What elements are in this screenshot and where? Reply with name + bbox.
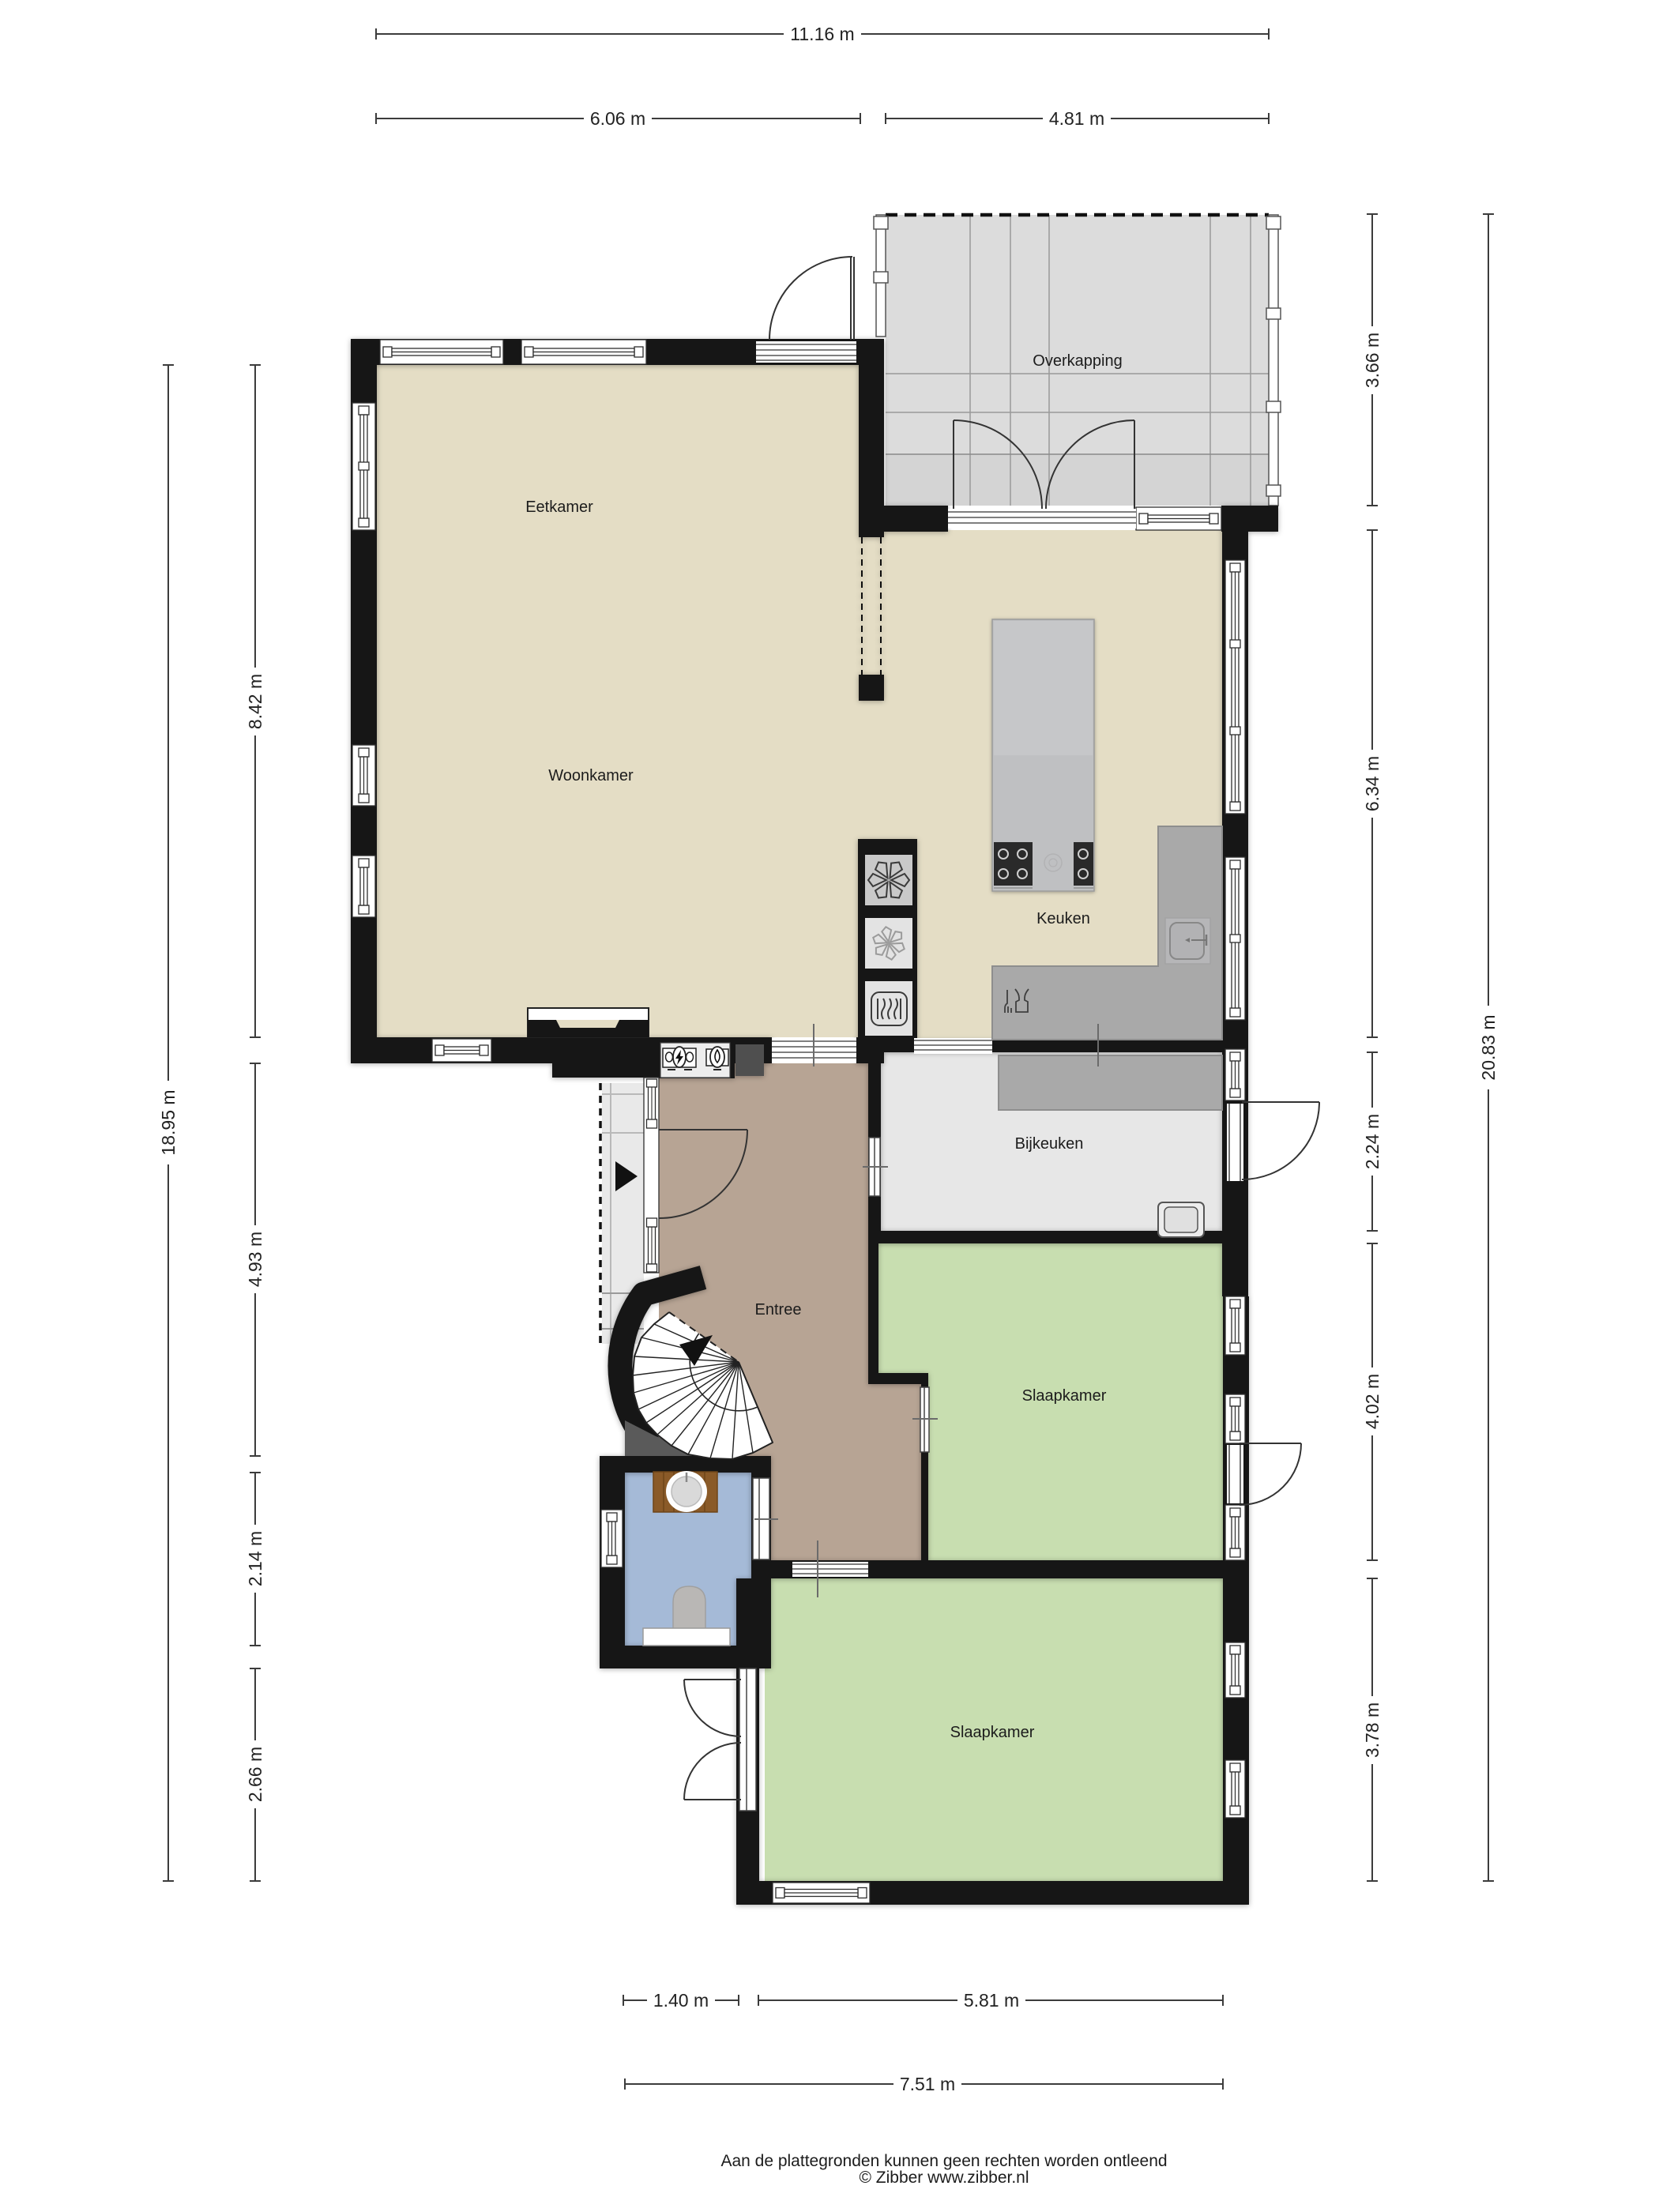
svg-text:3.66 m: 3.66 m (1362, 333, 1382, 388)
svg-text:Overkapping: Overkapping (1033, 352, 1122, 370)
svg-text:2.66 m: 2.66 m (245, 1747, 265, 1802)
svg-text:Slaapkamer: Slaapkamer (950, 1724, 1035, 1741)
svg-text:8.42 m: 8.42 m (245, 674, 265, 729)
svg-text:2.24 m: 2.24 m (1362, 1114, 1382, 1169)
svg-text:4.81 m: 4.81 m (1049, 108, 1104, 129)
svg-text:18.95 m: 18.95 m (158, 1089, 179, 1155)
svg-text:2.14 m: 2.14 m (245, 1531, 265, 1586)
svg-text:20.83 m: 20.83 m (1478, 1014, 1499, 1080)
svg-text:3.78 m: 3.78 m (1362, 1702, 1382, 1758)
svg-text:Entree: Entree (755, 1301, 802, 1319)
svg-text:6.06 m: 6.06 m (590, 108, 645, 129)
svg-text:Slaapkamer: Slaapkamer (1022, 1387, 1107, 1405)
svg-text:© Zibber www.zibber.nl: © Zibber www.zibber.nl (859, 2169, 1029, 2187)
svg-text:5.81 m: 5.81 m (964, 1990, 1019, 2011)
svg-text:Keuken: Keuken (1036, 910, 1090, 927)
svg-text:Eetkamer: Eetkamer (525, 498, 593, 516)
svg-text:1.40 m: 1.40 m (653, 1990, 709, 2011)
svg-text:Woonkamer: Woonkamer (548, 767, 634, 784)
svg-text:Aan de plattegronden kunnen ge: Aan de plattegronden kunnen geen rechten… (720, 2152, 1167, 2170)
svg-text:7.51 m: 7.51 m (900, 2074, 955, 2094)
svg-text:Bijkeuken: Bijkeuken (1015, 1135, 1084, 1153)
svg-text:4.02 m: 4.02 m (1362, 1374, 1382, 1429)
svg-text:11.16 m: 11.16 m (790, 24, 854, 44)
svg-text:6.34 m: 6.34 m (1362, 756, 1382, 811)
svg-text:4.93 m: 4.93 m (245, 1232, 265, 1287)
